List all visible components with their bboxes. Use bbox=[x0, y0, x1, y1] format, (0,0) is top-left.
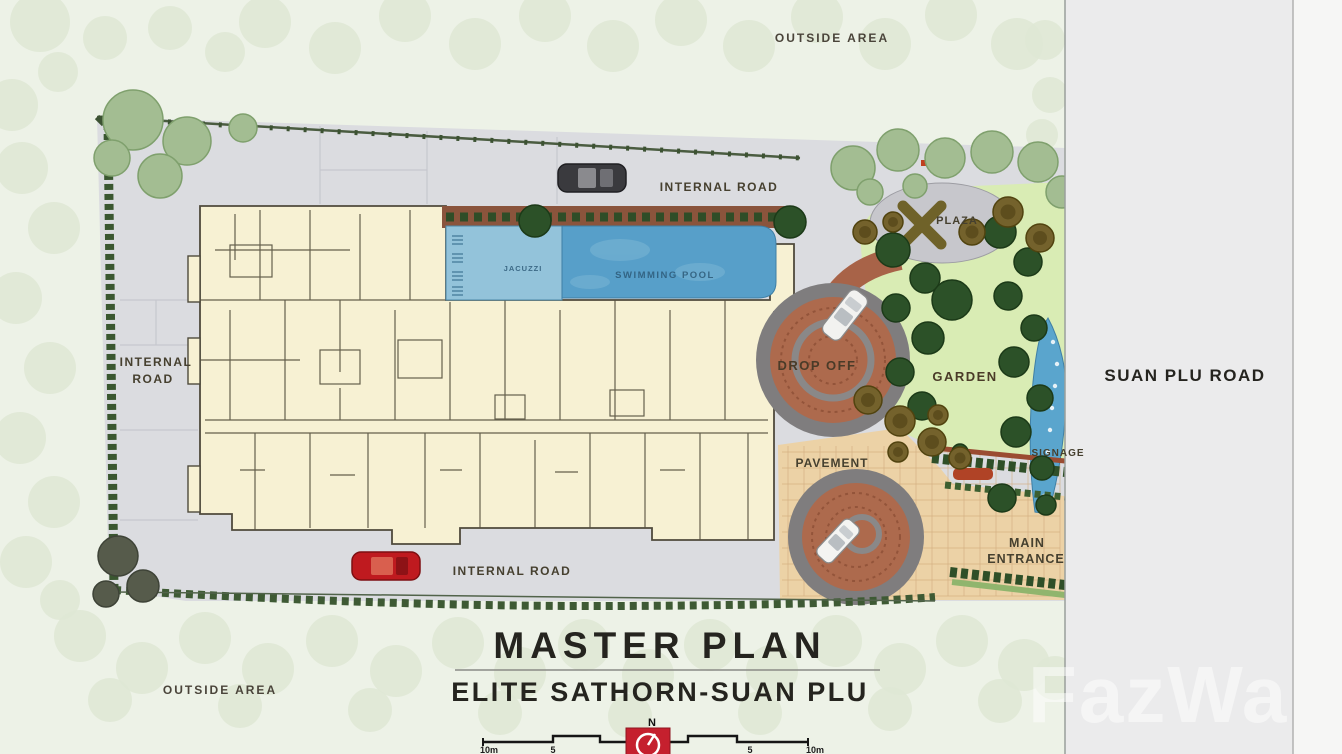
dark-green-tree bbox=[994, 282, 1022, 310]
sage-tree bbox=[94, 140, 130, 176]
background-tree bbox=[936, 615, 988, 667]
olive-tree-center bbox=[888, 217, 898, 227]
background-tree bbox=[348, 688, 392, 732]
background-tree bbox=[587, 20, 639, 72]
background-tree bbox=[723, 20, 775, 72]
sage-tree bbox=[229, 114, 257, 142]
dark-green-tree bbox=[912, 322, 944, 354]
background-tree bbox=[179, 612, 231, 664]
sage-tree bbox=[971, 131, 1013, 173]
sage-tree bbox=[1018, 142, 1058, 182]
label-drop-off: DROP OFF bbox=[778, 358, 857, 373]
page-subtitle: ELITE SATHORN-SUAN PLU bbox=[451, 677, 869, 707]
background-tree bbox=[0, 536, 52, 588]
olive-tree-center bbox=[966, 226, 979, 239]
background-tree bbox=[449, 18, 501, 70]
olive-tree-center bbox=[861, 393, 875, 407]
background-tree bbox=[28, 476, 80, 528]
flower-bed bbox=[953, 468, 993, 480]
gray-green-tree bbox=[93, 581, 119, 607]
background-tree bbox=[24, 342, 76, 394]
scale-label-1: 5 bbox=[550, 745, 555, 754]
background-tree bbox=[978, 679, 1022, 723]
gray-green-tree bbox=[98, 536, 138, 576]
background-tree bbox=[148, 6, 192, 50]
sage-tree bbox=[857, 179, 883, 205]
scale-label-3: 10m bbox=[806, 745, 824, 754]
label-main-entrance-1: MAIN bbox=[1009, 536, 1045, 550]
dark-green-tree bbox=[519, 205, 551, 237]
background-tree bbox=[54, 610, 106, 662]
label-suan-plu-road: SUAN PLU ROAD bbox=[1104, 366, 1265, 385]
dark-green-tree bbox=[1036, 495, 1056, 515]
watermark: FazWa bbox=[1028, 650, 1288, 739]
dark-green-tree bbox=[988, 484, 1016, 512]
label-outside-area-bottom: OUTSIDE AREA bbox=[163, 683, 277, 697]
background-tree bbox=[432, 617, 484, 669]
scale-label-2: 5 bbox=[747, 745, 752, 754]
olive-tree-center bbox=[1033, 231, 1047, 245]
dark-green-tree bbox=[932, 280, 972, 320]
background-tree bbox=[874, 643, 926, 695]
swimming-pool bbox=[446, 226, 776, 300]
sage-tree bbox=[925, 138, 965, 178]
dark-green-tree bbox=[774, 206, 806, 238]
olive-tree-center bbox=[955, 453, 966, 464]
sage-tree bbox=[903, 174, 927, 198]
label-pavement: PAVEMENT bbox=[796, 456, 869, 470]
label-main-entrance-2: ENTRANCE bbox=[987, 552, 1064, 566]
sage-tree bbox=[877, 129, 919, 171]
dark-green-tree bbox=[876, 233, 910, 267]
dark-green-tree bbox=[1027, 385, 1053, 411]
olive-tree-center bbox=[893, 447, 903, 457]
olive-tree-center bbox=[925, 435, 939, 449]
olive-tree-center bbox=[893, 414, 908, 429]
master-plan-image: OUTSIDE AREA INTERNAL ROAD INTERNAL ROAD… bbox=[0, 0, 1342, 754]
label-plaza: PLAZA bbox=[936, 215, 978, 227]
label-internal-road-top: INTERNAL ROAD bbox=[660, 180, 779, 194]
gray-green-tree bbox=[127, 570, 159, 602]
dark-green-tree bbox=[1001, 417, 1031, 447]
dark-green-tree bbox=[1021, 315, 1047, 341]
car-red bbox=[352, 552, 420, 580]
olive-tree-center bbox=[1001, 205, 1016, 220]
background-tree bbox=[88, 678, 132, 722]
dark-green-tree bbox=[1030, 456, 1054, 480]
scale-label-0: 10m bbox=[480, 745, 498, 754]
label-garden: GARDEN bbox=[932, 369, 997, 384]
background-tree bbox=[309, 22, 361, 74]
label-internal-road-left-2: ROAD bbox=[132, 372, 173, 386]
background-tree bbox=[205, 32, 245, 72]
label-outside-area-top: OUTSIDE AREA bbox=[775, 31, 889, 45]
background-tree bbox=[306, 615, 358, 667]
label-swimming-pool: SWIMMING POOL bbox=[615, 270, 715, 281]
north-label: N bbox=[648, 717, 656, 729]
page-title: MASTER PLAN bbox=[493, 625, 826, 666]
label-signage: SIGNAGE bbox=[1031, 448, 1084, 459]
sage-tree bbox=[138, 154, 182, 198]
background-tree bbox=[868, 687, 912, 731]
background-tree bbox=[370, 645, 422, 697]
background-tree bbox=[83, 16, 127, 60]
background-tree bbox=[1025, 20, 1065, 60]
background-tree bbox=[28, 202, 80, 254]
dark-green-tree bbox=[999, 347, 1029, 377]
label-internal-road-bottom: INTERNAL ROAD bbox=[453, 564, 572, 578]
olive-tree-center bbox=[859, 226, 871, 238]
background-tree bbox=[1032, 77, 1068, 113]
label-jacuzzi: JACUZZI bbox=[504, 264, 543, 273]
dark-green-tree bbox=[886, 358, 914, 386]
car-black bbox=[558, 164, 626, 192]
label-internal-road-left-1: INTERNAL bbox=[120, 355, 193, 369]
dark-green-tree bbox=[882, 294, 910, 322]
background-tree bbox=[38, 52, 78, 92]
olive-tree-center bbox=[933, 410, 943, 420]
